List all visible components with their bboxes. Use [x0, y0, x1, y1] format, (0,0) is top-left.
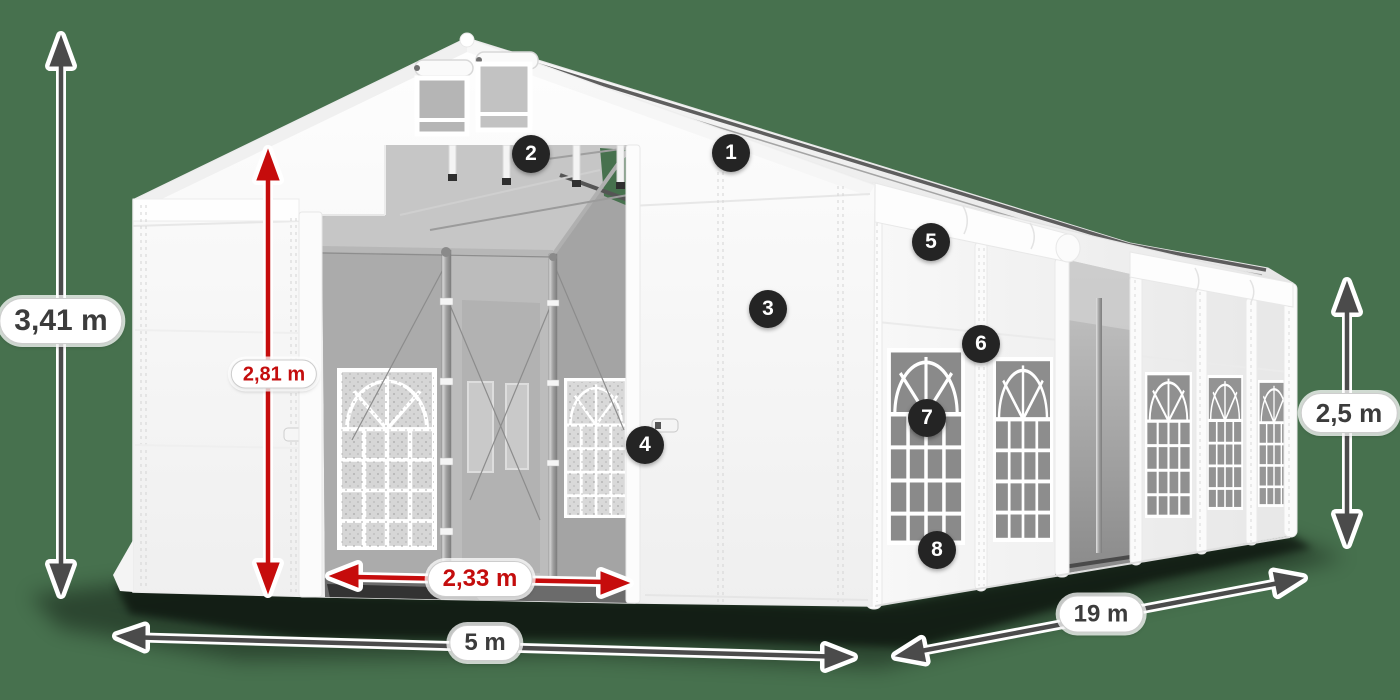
feature-badge-3: 3 [749, 290, 787, 328]
side-window-4 [1207, 375, 1243, 510]
feature-badge-4: 4 [626, 426, 664, 464]
feature-badge-8: 8 [918, 531, 956, 569]
apex-cap [460, 33, 474, 47]
feature-badge-7: 7 [908, 399, 946, 437]
gable-vents [414, 52, 538, 134]
side-window-2 [993, 357, 1053, 542]
partition-beam [322, 249, 553, 253]
feature-badge-1: 1 [712, 134, 750, 172]
feature-badge-6: 6 [962, 325, 1000, 363]
tent-diagram: 3,41 m 2,81 m 2,33 m 5 m 19 m 2,5 m 1 2 … [0, 0, 1400, 700]
dimension-label-side-height: 2,5 m [1301, 393, 1398, 433]
vent-window-left [417, 78, 467, 134]
dimension-label-side-length: 19 m [1059, 596, 1144, 633]
tent-illustration [0, 0, 1400, 700]
dimension-label-entrance-width: 2,33 m [428, 561, 533, 597]
vent-window-right [478, 64, 530, 130]
side-window-3 [1145, 372, 1192, 518]
vent-roller-left [415, 60, 473, 76]
dimension-label-total-height: 3,41 m [0, 298, 123, 344]
dimension-label-front-width: 5 m [449, 625, 520, 661]
side-window-1 [887, 348, 965, 545]
left-top-rail [133, 199, 299, 221]
feature-badge-5: 5 [912, 223, 950, 261]
dimension-label-entrance-height: 2,81 m [231, 360, 317, 389]
feature-badge-2: 2 [512, 135, 550, 173]
